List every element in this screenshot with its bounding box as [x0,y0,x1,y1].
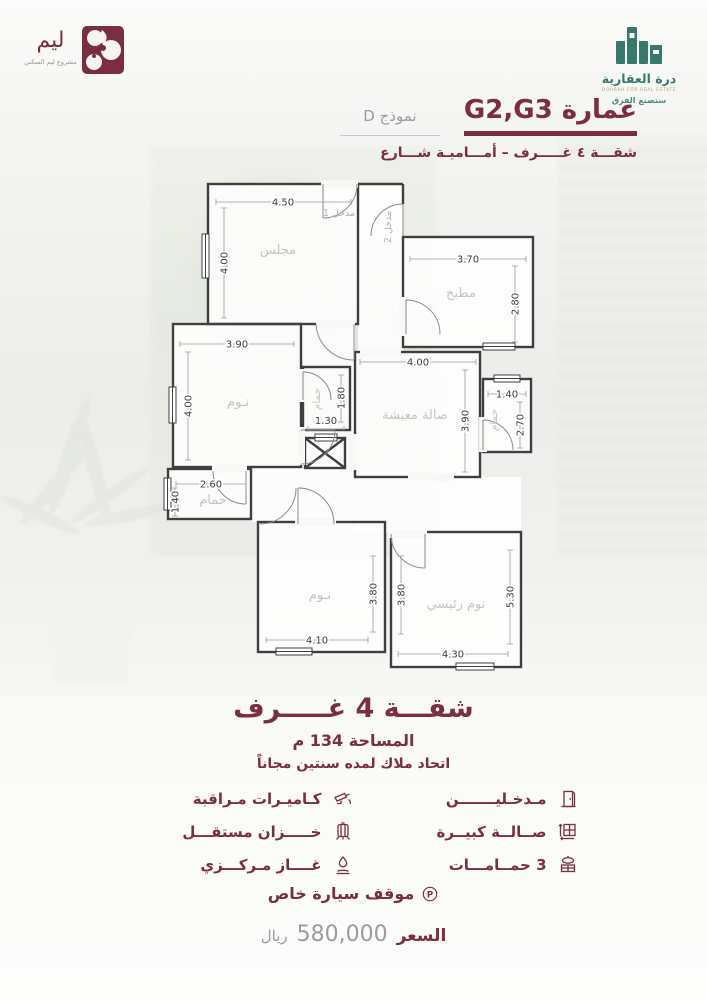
summary: شقـــة 4 غـــــرف المساحة 134 م اتحاد مل… [0,693,707,772]
leem-logo-name: ليم [36,30,64,52]
feature-label: غــــاز مـركـــزي [200,856,321,874]
room-label-living: صالة معيشة [382,408,448,423]
price-label: السعر [397,926,447,946]
dim-label: 3.90 [461,410,472,432]
background-brick-wall [557,136,707,566]
room-label-bedroom2: نـوم [309,588,331,603]
room-label-rightbath: حمام [488,409,500,431]
features-grid: مـدخـليـــــــن كـاميـرات مـراقبة صــالـ… [129,788,579,876]
feature-label: كـاميـرات مـراقبة [193,790,322,808]
dim-label: 3.90 [226,340,248,351]
room-label-leftbath: حمام [199,493,227,508]
dim-label: 2.80 [511,293,522,315]
header: عمارة G2,G3 نموذج D شقـــة ٤ غـــــرف – … [340,96,637,161]
price-value: 580,000 [297,922,388,947]
room-label-kitchen: مطبخ [446,286,476,301]
room-label-majlis: مجلس [260,243,296,258]
header-title-row: عمارة G2,G3 نموذج D [340,96,637,136]
leem-logo-icon [82,26,124,74]
feature-label: صــالــة كبيــرة [437,823,547,841]
parking-label: موقف سيارة خاص [268,884,415,903]
dim-label: 3.80 [397,584,408,606]
dim-label: 1.40 [171,491,182,513]
tank-icon [332,821,354,843]
feature-label: 3 حمــامـــات [449,856,547,874]
gas-icon [332,854,354,876]
feature-entrances: مـدخـليـــــــن [364,788,579,810]
dim-label: 4.00 [220,252,231,274]
room-label-bedroom1: نـوم [227,395,249,410]
door-icon [557,788,579,810]
parking-row: P موقف سيارة خاص [0,884,707,903]
floor-plan: 4.50 3.70 3.90 4.00 1.40 2.60 1.30 4.10 … [158,172,548,687]
dorrah-logo-subtext: DORRAH FOR REAL ESTATE [591,88,687,93]
hall-icon [557,821,579,843]
cctv-icon [332,788,354,810]
dim-label: 5.30 [506,586,517,608]
dim-label: 3.70 [457,255,479,266]
dim-label: 4.30 [442,650,464,661]
leem-logo-tagline: مشروع ليم السكني [24,58,77,66]
feature-gas: غــــاز مـركـــزي [129,854,354,876]
dim-label: 1.80 [337,387,348,409]
svg-text:P: P [427,890,433,900]
dim-label: 4.00 [407,358,429,369]
dim-label: 2.70 [516,414,527,436]
area-text: المساحة 134 م [0,731,707,750]
model-label: نموذج D [340,107,440,136]
dim-label: 1.30 [315,416,337,427]
dim-label: 4.50 [272,198,294,209]
building-title: عمارة G2,G3 [464,96,637,136]
feature-large-hall: صــالــة كبيــرة [364,821,579,843]
dim-label: 2.60 [200,480,222,491]
features: مـدخـليـــــــن كـاميـرات مـراقبة صــالـ… [0,788,707,876]
price-currency: ريال [261,927,288,945]
dorrah-logo-icon [615,26,663,64]
feature-label: مـدخـليـــــــن [446,790,547,808]
header-subtitle: شقـــة ٤ غـــــرف – أمـــاميـة شـــارع [380,145,637,161]
entrance2-label: مدخل 2 [383,211,394,243]
parking-icon: P [421,885,439,903]
price-row: السعر 580,000 ريال [0,922,707,947]
dim-label: 1.40 [496,390,518,401]
dorrah-logo: درة العقارية DORRAH FOR REAL ESTATE سنصن… [591,26,687,105]
dorrah-logo-name: درة العقارية [591,71,687,86]
owners-association-note: اتحاد ملاك لمده سنتين مجاناً [0,756,707,772]
feature-label: خـــــزان مستقـــل [182,823,321,841]
sink-icon [557,854,579,876]
dim-label: 3.80 [369,583,380,605]
room-label-master: نوم رئيسي [427,597,486,612]
room-label-midbath: حمام [311,388,323,410]
feature-tank: خـــــزان مستقـــل [129,821,354,843]
flyer-canvas: ليم مشروع ليم السكني درة العقارية DORRAH… [0,0,707,1000]
dim-label: 4.00 [184,395,195,417]
entrance1-label: مدخل 1 [323,208,355,219]
leem-logo: ليم مشروع ليم السكني [24,26,124,74]
feature-bathrooms: 3 حمــامـــات [364,854,579,876]
apartment-title: شقـــة 4 غـــــرف [0,693,707,724]
feature-cameras: كـاميـرات مـراقبة [129,788,354,810]
dim-label: 4.10 [306,636,328,647]
